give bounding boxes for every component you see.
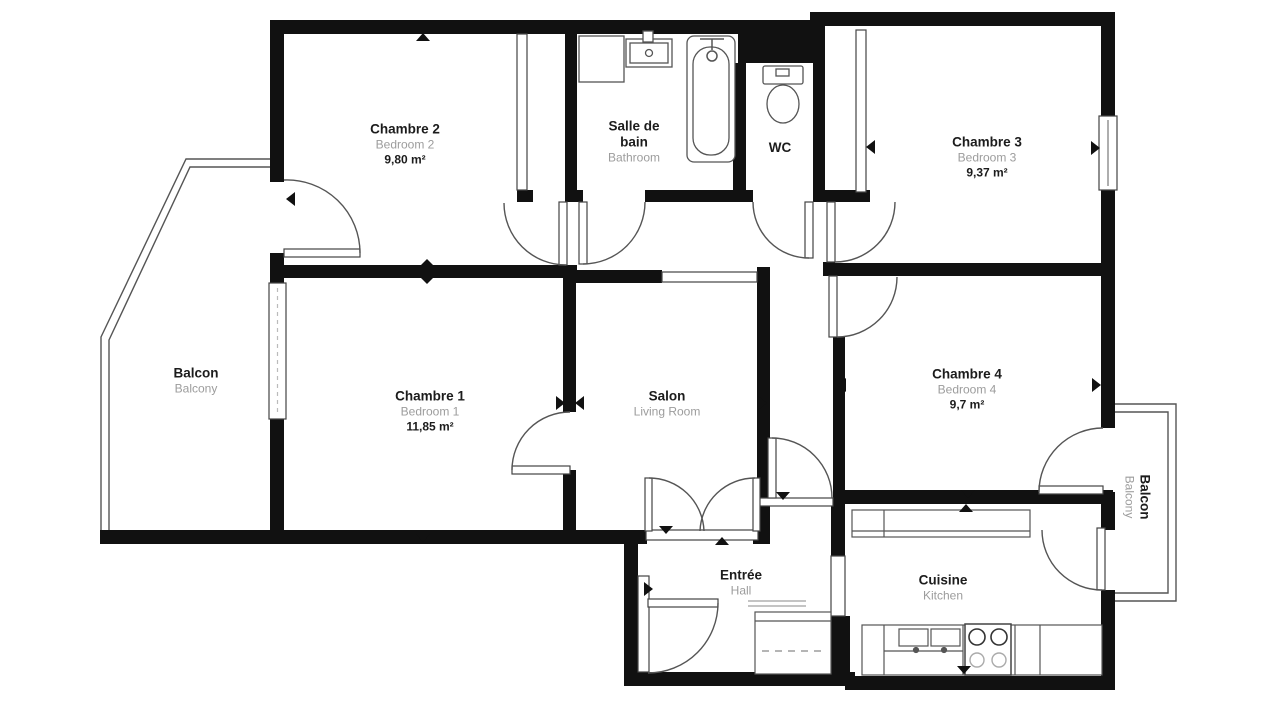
- room-label-chambre-2: Chambre 2 Bedroom 2 9,80 m²: [370, 122, 440, 167]
- toilet-icon: [763, 66, 803, 123]
- room-name-en: Bathroom: [602, 151, 666, 165]
- room-name: Chambre 3: [952, 135, 1022, 151]
- room-name: Chambre 4: [932, 367, 1002, 383]
- room-name: Entrée: [720, 568, 762, 584]
- room-label-chambre-1: Chambre 1 Bedroom 1 11,85 m²: [395, 389, 465, 434]
- wardrobe-icon: [748, 601, 831, 674]
- room-name-en: Bedroom 3: [952, 151, 1022, 165]
- room-label-salle-de-bain: Salle de bain Bathroom: [602, 119, 666, 166]
- room-name-en: Bedroom 1: [395, 405, 465, 419]
- room-name: Balcon: [173, 366, 218, 382]
- room-name-en: Hall: [720, 584, 762, 598]
- room-name: Cuisine: [919, 573, 968, 589]
- room-area: 9,37 m²: [952, 165, 1022, 179]
- room-area: 11,85 m²: [395, 419, 465, 433]
- bathroom-sink-icon: [626, 31, 672, 67]
- door-wc: [753, 202, 809, 258]
- door-entrance: [648, 603, 718, 673]
- room-name-en: Living Room: [634, 405, 701, 419]
- room-name-en: Kitchen: [919, 589, 968, 603]
- room-label-chambre-3: Chambre 3 Bedroom 3 9,37 m²: [952, 135, 1022, 180]
- door-chambre4: [837, 277, 897, 337]
- window-chambre1: [269, 283, 286, 419]
- room-label-entree: Entrée Hall: [720, 568, 762, 599]
- room-name: Balcon: [1136, 474, 1152, 519]
- room-name: Salon: [634, 389, 701, 405]
- door-chambre3: [835, 202, 895, 262]
- floor-plan-drawing: [0, 0, 1280, 720]
- room-name-en: Bedroom 4: [932, 383, 1002, 397]
- room-name-en: Bedroom 2: [370, 138, 440, 152]
- room-label-balcon-left: Balcon Balcony: [173, 366, 218, 397]
- room-name: Salle de bain: [602, 119, 666, 151]
- stove-icon: [965, 624, 1011, 675]
- room-name-en: Balcony: [1122, 474, 1136, 519]
- room-label-salon: Salon Living Room: [634, 389, 701, 420]
- room-name-en: Balcony: [173, 382, 218, 396]
- room-name: Chambre 1: [395, 389, 465, 405]
- floor-plan: Chambre 2 Bedroom 2 9,80 m² Salle de bai…: [0, 0, 1280, 720]
- door-chambre2: [504, 203, 566, 265]
- door-chambre4-balcony: [1039, 428, 1103, 492]
- washing-machine-icon: [579, 36, 624, 82]
- room-area: 9,7 m²: [932, 397, 1002, 411]
- door-chambre2-balcony: [284, 180, 360, 253]
- balcony-left-railing: [101, 159, 272, 536]
- door-kitchen-balcony: [1042, 530, 1102, 590]
- room-label-cuisine: Cuisine Kitchen: [919, 573, 968, 604]
- room-label-wc: WC: [769, 140, 792, 156]
- room-name: WC: [769, 140, 792, 156]
- door-salon-left: [649, 478, 704, 531]
- door-salon-right: [700, 478, 755, 531]
- door-corridor: [772, 438, 832, 498]
- upper-cabinets-icon: [852, 510, 1030, 537]
- door-bathroom: [583, 202, 645, 264]
- room-area: 9,80 m²: [370, 152, 440, 166]
- door-chambre1: [512, 412, 570, 470]
- room-label-chambre-4: Chambre 4 Bedroom 4 9,7 m²: [932, 367, 1002, 412]
- room-label-balcon-right: Balcon Balcony: [1122, 474, 1153, 519]
- room-name: Chambre 2: [370, 122, 440, 138]
